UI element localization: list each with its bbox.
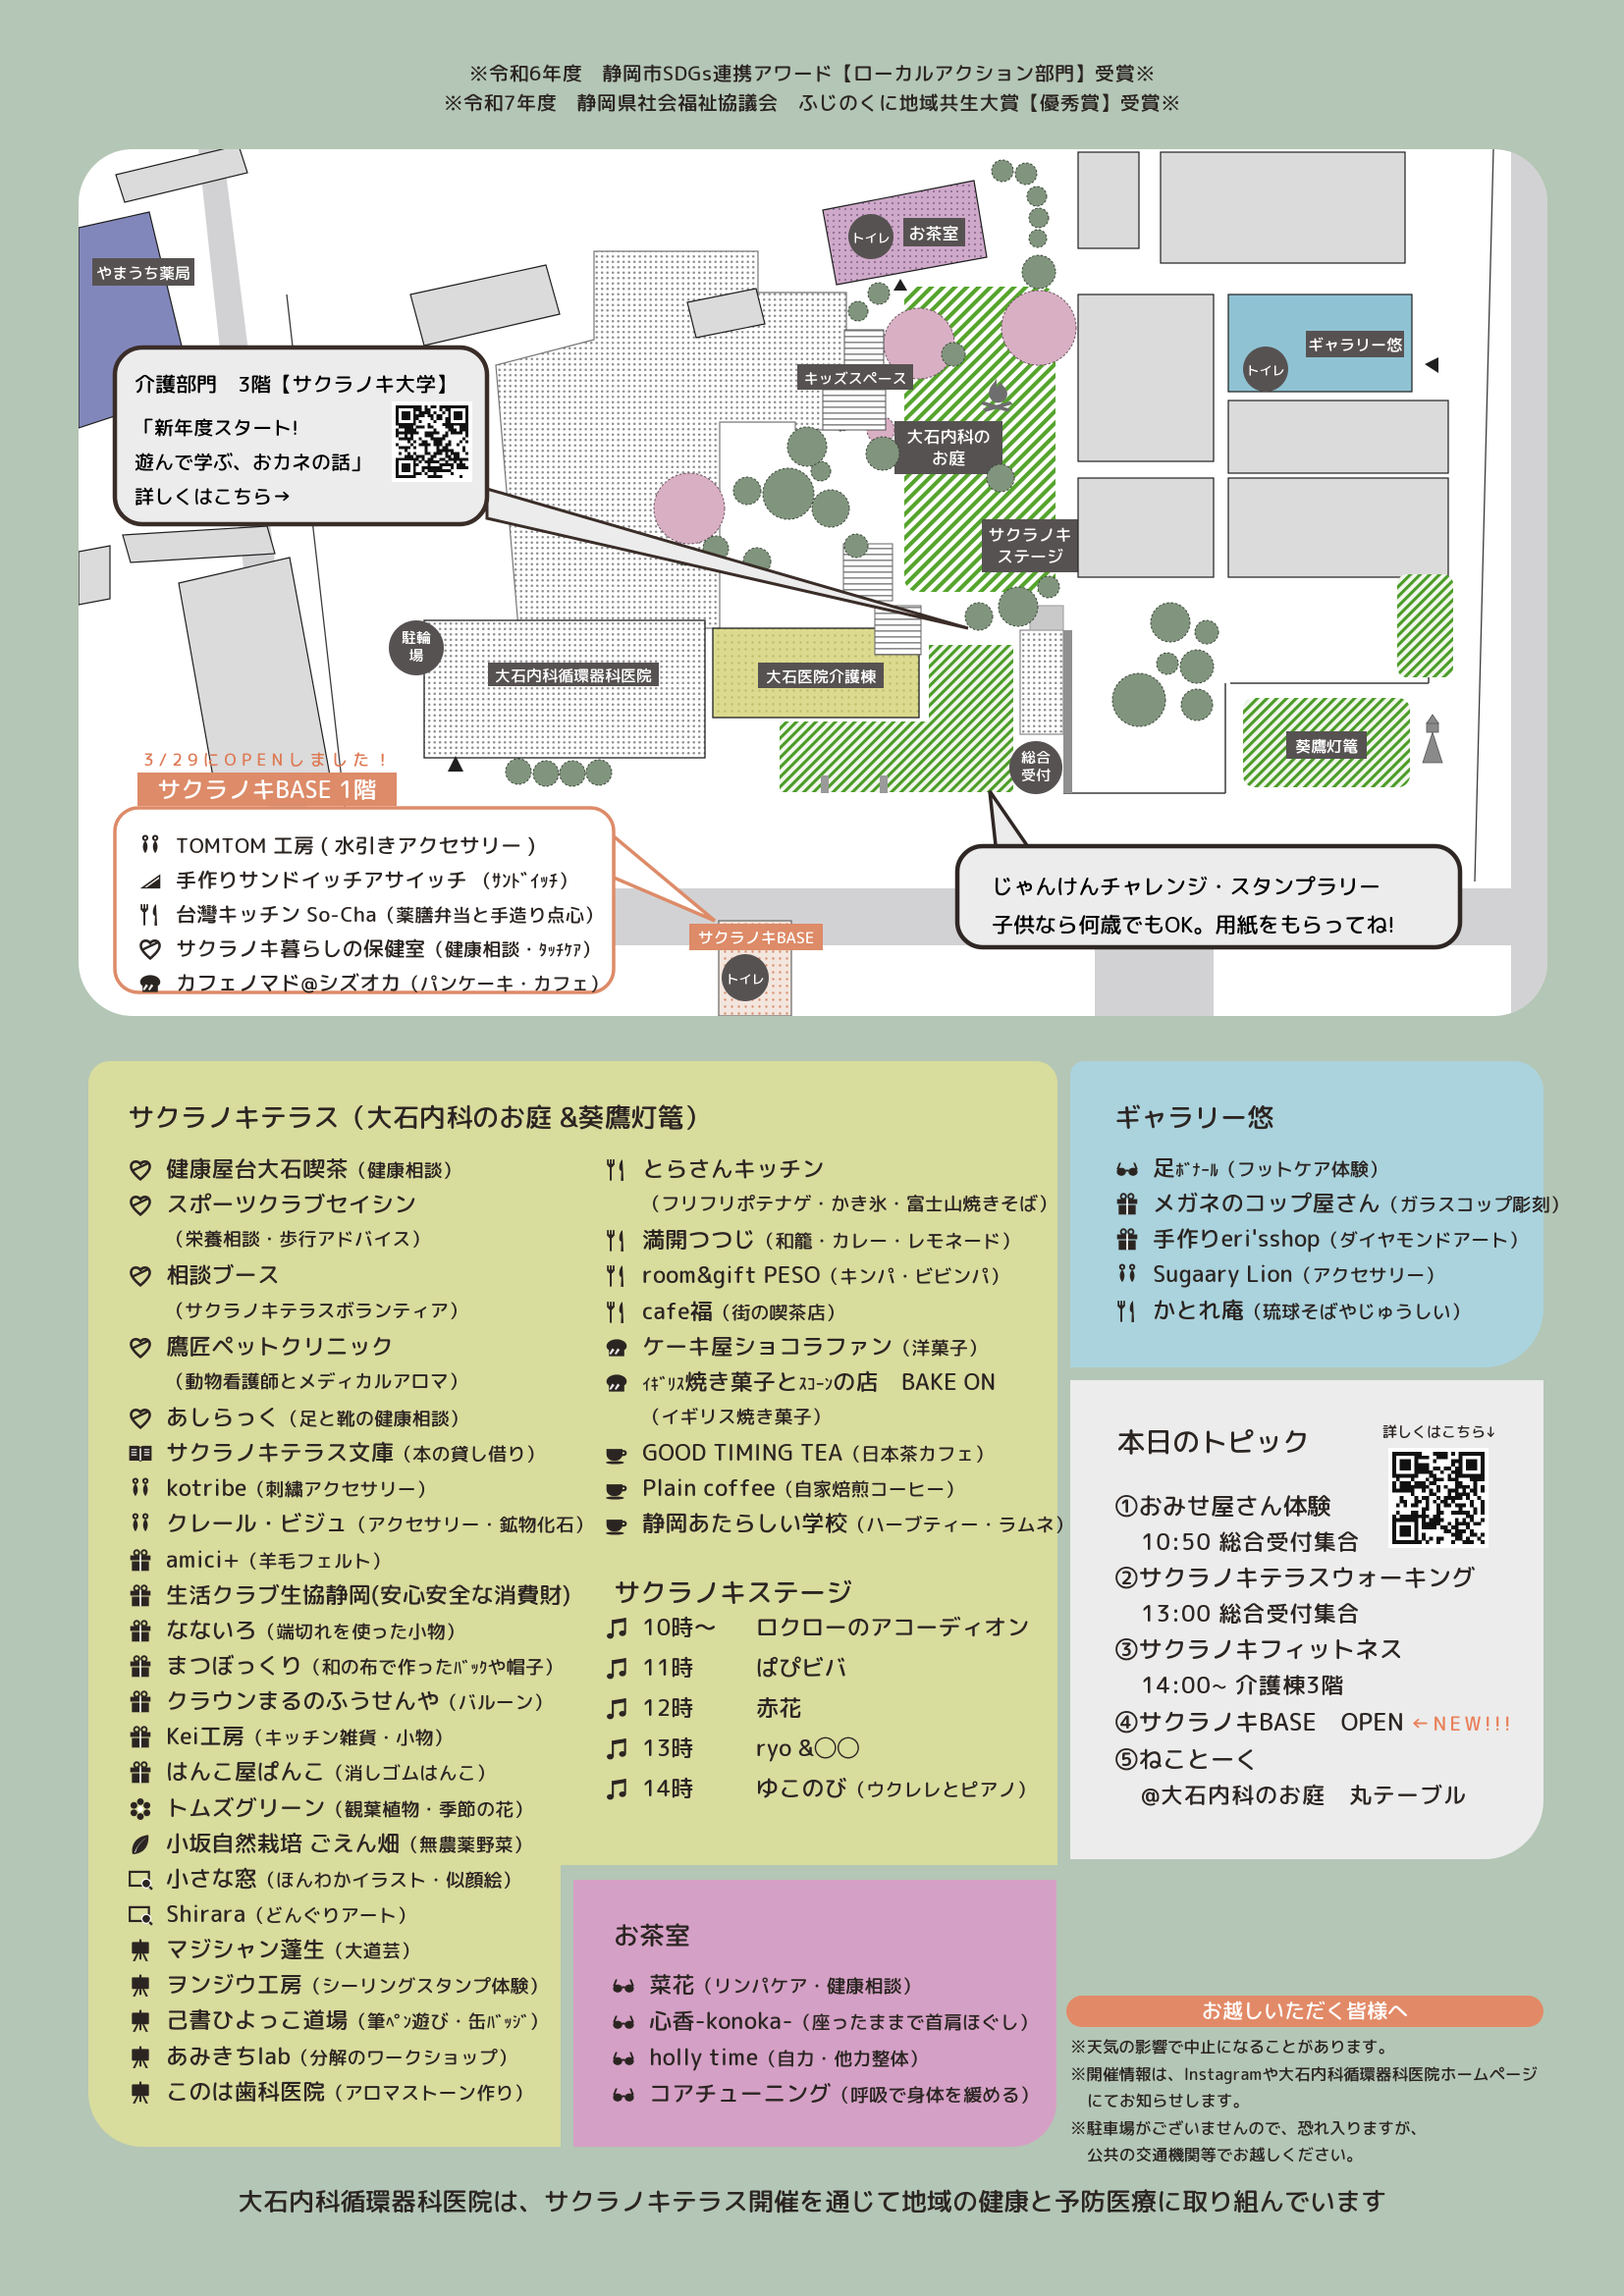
svg-text:受付: 受付: [1021, 765, 1051, 785]
svg-text:トイレ: トイレ: [851, 230, 890, 247]
svg-text:子供なら何歳でもOK。用紙をもらってね!: 子供なら何歳でもOK。用紙をもらってね!: [992, 910, 1395, 940]
svg-text:トイレ: トイレ: [726, 971, 764, 988]
svg-text:キッズスペース: キッズスペース: [803, 368, 906, 389]
svg-text:「新年度スタート!: 「新年度スタート!: [135, 414, 298, 442]
svg-text:大石内科循環器科医院: 大石内科循環器科医院: [495, 666, 652, 687]
svg-text:ギャラリー悠: ギャラリー悠: [1308, 335, 1402, 356]
svg-text:お庭: お庭: [932, 448, 965, 470]
svg-text:葵鷹灯篭: 葵鷹灯篭: [1295, 736, 1358, 758]
svg-text:トイレ: トイレ: [1246, 362, 1284, 380]
svg-text:サクラノキBASE 1階: サクラノキBASE 1階: [157, 773, 377, 806]
svg-text:やまうち薬局: やまうち薬局: [96, 263, 190, 285]
svg-text:お茶室: お茶室: [909, 223, 959, 245]
svg-text:介護部門 3階【サクラノキ大学】: 介護部門 3階【サクラノキ大学】: [135, 369, 457, 399]
svg-text:大石医院介護棟: 大石医院介護棟: [766, 667, 877, 688]
svg-text:場: 場: [408, 645, 423, 666]
svg-text:サクラノキ: サクラノキ: [989, 524, 1072, 547]
svg-text:遊んで学ぶ、おカネの話」: 遊んで学ぶ、おカネの話」: [135, 449, 370, 476]
svg-text:3/29にOPENしました！: 3/29にOPENしました！: [143, 749, 396, 772]
svg-text:ステージ: ステージ: [997, 546, 1063, 568]
svg-text:サクラノキBASE: サクラノキBASE: [698, 928, 815, 949]
svg-text:大石内科の: 大石内科の: [907, 426, 991, 449]
svg-text:詳しくはこちら→: 詳しくはこちら→: [135, 483, 292, 510]
svg-text:じゃんけんチャレンジ・スタンプラリー: じゃんけんチャレンジ・スタンプラリー: [992, 872, 1380, 902]
